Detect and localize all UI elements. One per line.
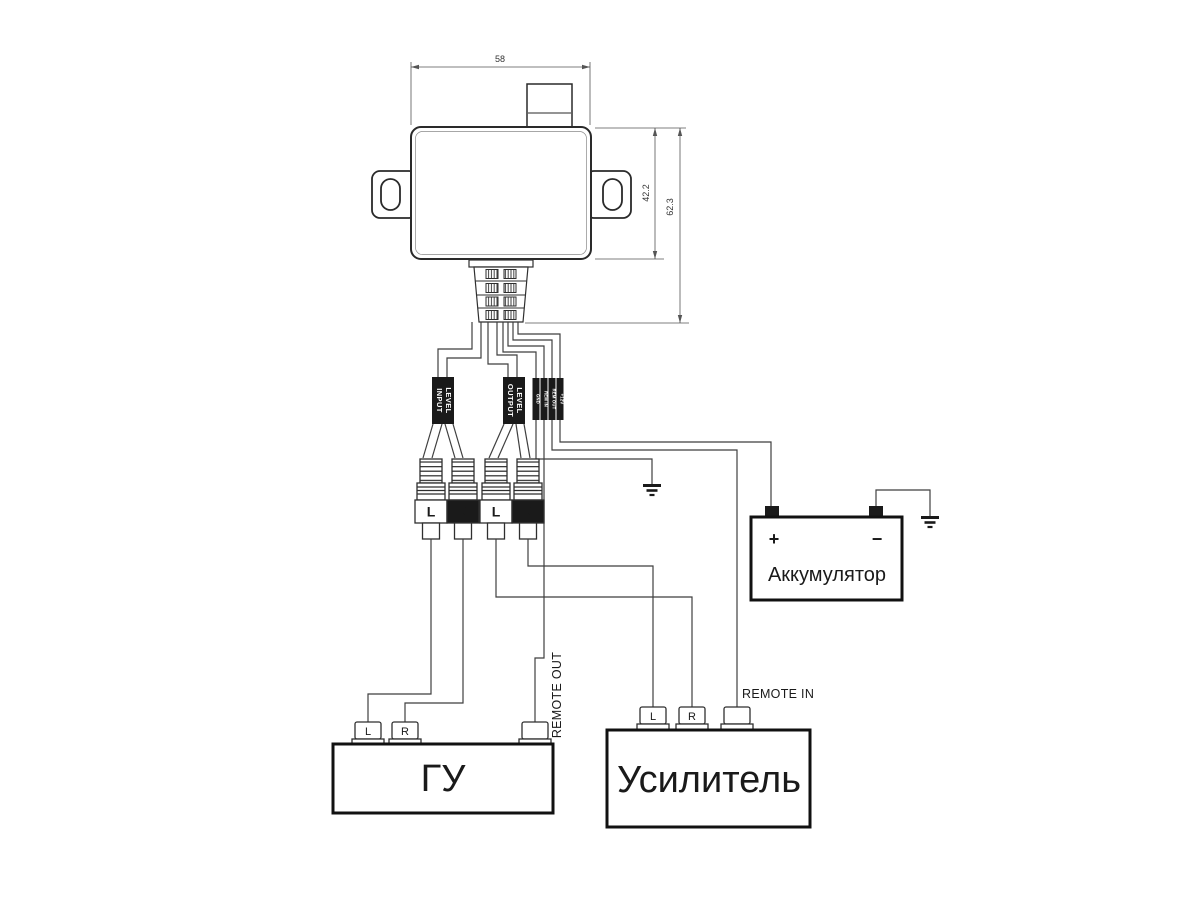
thin-wire-labels: GND REM IN REM OUT +12V	[533, 378, 565, 420]
wire-label-rem-out: REM OUT	[552, 389, 557, 410]
head-unit-title: ГУ	[421, 758, 467, 800]
rca-tip	[488, 523, 505, 539]
amplifier-connector-r: R	[676, 707, 708, 730]
rca-collar	[482, 483, 510, 500]
rca-collar	[514, 483, 542, 500]
head-unit-l-label: L	[365, 726, 371, 738]
dim-width-label: 58	[495, 54, 505, 64]
rca-strain-relief	[452, 459, 474, 483]
rca-strain-relief	[485, 459, 507, 483]
level-input-line2: INPUT	[435, 388, 444, 413]
rca-collar	[417, 483, 445, 500]
level-input-line1: LEVEL	[444, 387, 453, 413]
tab-hole-left	[381, 179, 400, 210]
mounting-tab-right	[586, 171, 631, 218]
dim-body-height-label: 42.2	[641, 184, 651, 202]
wire-label-rem-in: REM IN	[544, 391, 549, 407]
level-output-line2: OUTPUT	[506, 384, 515, 417]
rca-tip	[423, 523, 440, 539]
wire-harness	[469, 260, 533, 322]
rca-tip	[520, 523, 537, 539]
device-top-connector	[527, 84, 572, 127]
wire-label-12v: +12V	[560, 394, 565, 405]
amplifier-title: Усилитель	[617, 759, 801, 801]
remote-out-label: REMOTE OUT	[550, 652, 564, 738]
rca-label: R	[523, 504, 533, 520]
rca-label: L	[492, 504, 501, 520]
level-output-line1: LEVEL	[515, 387, 524, 413]
battery-plus-sign: +	[769, 529, 780, 549]
head-unit-connector-l: L	[352, 722, 384, 745]
device-body	[411, 127, 591, 259]
head-unit-connector-r: R	[389, 722, 421, 745]
amplifier-r-label: R	[688, 711, 696, 723]
wiring-diagram-page: 58 42.2 62.3	[0, 0, 1200, 900]
wire-label-gnd: GND	[536, 394, 541, 404]
wiring-diagram: 58 42.2 62.3	[0, 0, 1200, 900]
rca-tip	[455, 523, 472, 539]
head-unit-r-label: R	[401, 726, 409, 738]
rca-label: L	[427, 504, 436, 520]
battery-terminal-negative	[869, 506, 883, 517]
head-unit-connector-remote	[519, 722, 551, 745]
rca-strain-relief	[517, 459, 539, 483]
rca-strain-relief	[420, 459, 442, 483]
rca-collar	[449, 483, 477, 500]
rca-label: R	[458, 504, 468, 520]
battery-title: Аккумулятор	[768, 564, 886, 586]
battery-minus-sign: −	[872, 529, 883, 549]
amplifier-connector-remote	[721, 707, 753, 730]
remote-in-label: REMOTE IN	[742, 687, 814, 701]
harness-flange	[469, 260, 533, 267]
dim-total-height-label: 62.3	[665, 198, 675, 216]
amplifier-connector-l: L	[637, 707, 669, 730]
tab-hole-right	[603, 179, 622, 210]
amplifier-l-label: L	[650, 711, 656, 723]
battery-terminal-positive	[765, 506, 779, 517]
